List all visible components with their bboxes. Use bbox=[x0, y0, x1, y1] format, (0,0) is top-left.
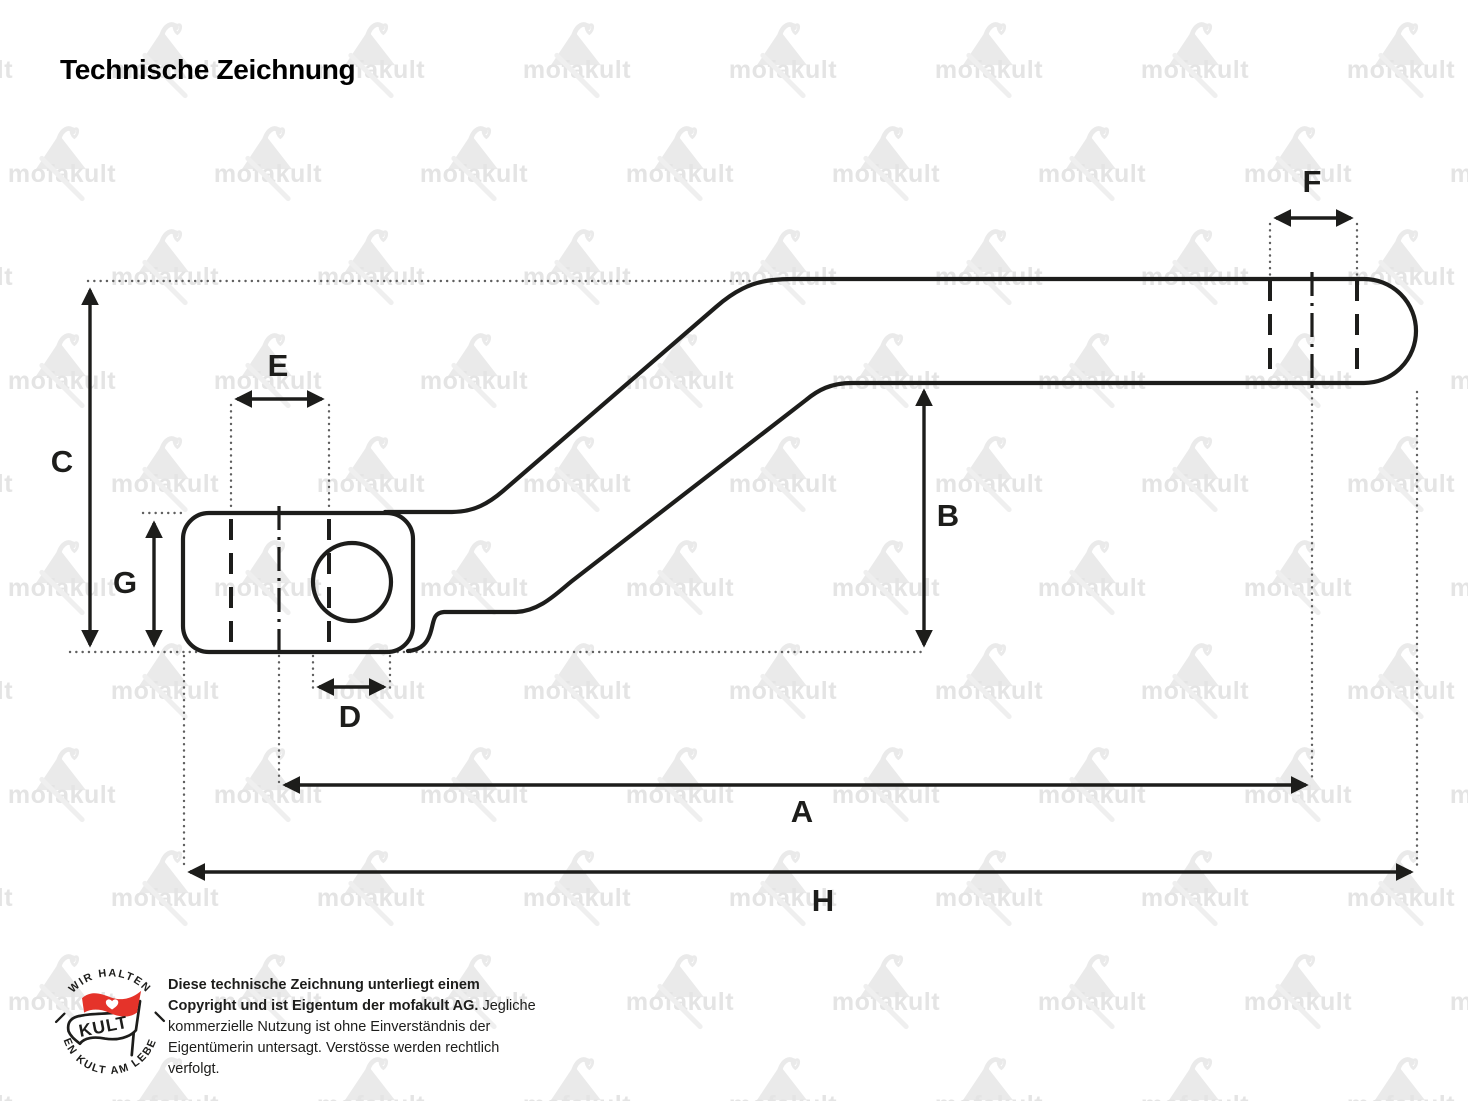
copyright-text-bold: Diese technische Zeichnung unterliegt ei… bbox=[168, 977, 480, 1014]
dim-label-A: A bbox=[791, 794, 813, 830]
svg-text:WIR HALTEN: WIR HALTEN bbox=[67, 967, 154, 995]
page-title: Technische Zeichnung bbox=[60, 54, 355, 86]
dim-label-E: E bbox=[268, 348, 289, 384]
dim-label-C: C bbox=[51, 444, 73, 480]
badge-arc-top-text: WIR HALTEN bbox=[67, 967, 154, 995]
center-lines bbox=[279, 272, 1312, 659]
extension-lines bbox=[70, 224, 1417, 870]
lever-arm-outline bbox=[385, 279, 1416, 651]
pedal-hole bbox=[313, 543, 391, 621]
technical-drawing-canvas bbox=[0, 0, 1468, 1101]
part-outline bbox=[183, 279, 1416, 652]
dim-label-B: B bbox=[937, 498, 959, 534]
technical-drawing-page: mofakultmofakultmofakultmofakultmofakult… bbox=[0, 0, 1468, 1101]
dim-label-H: H bbox=[812, 883, 834, 919]
dim-label-G: G bbox=[113, 565, 137, 601]
hub-body bbox=[183, 513, 413, 652]
dimension-arrows bbox=[90, 218, 1411, 872]
dim-label-D: D bbox=[339, 699, 361, 735]
copyright-text: Diese technische Zeichnung unterliegt ei… bbox=[168, 975, 536, 1080]
hidden-lines bbox=[231, 280, 1357, 649]
mofakult-badge-logo: WIR HALTEN DEN KULT AM LEBEN KULT bbox=[53, 966, 167, 1080]
dim-label-F: F bbox=[1303, 164, 1322, 200]
